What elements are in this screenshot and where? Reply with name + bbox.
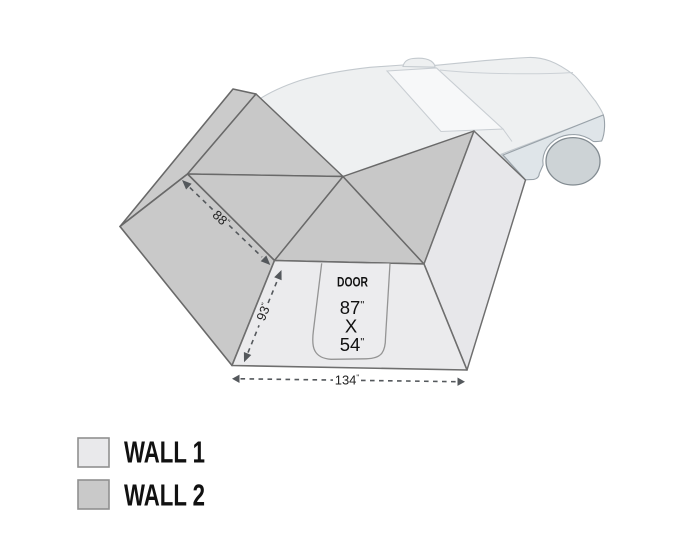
svg-text:134": 134"	[335, 372, 360, 387]
svg-text:WALL 2: WALL 2	[124, 479, 205, 513]
svg-text:DOOR: DOOR	[337, 275, 368, 290]
svg-text:WALL 1: WALL 1	[124, 436, 205, 470]
